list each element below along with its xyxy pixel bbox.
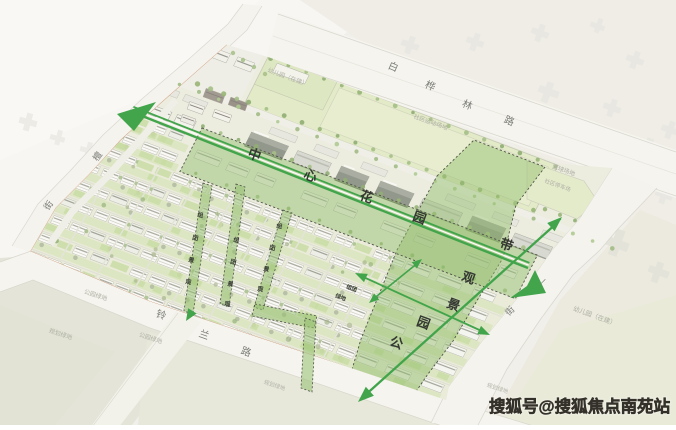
svg-text:搜狐号@搜狐焦点南苑站: 搜狐号@搜狐焦点南苑站 (489, 396, 671, 416)
